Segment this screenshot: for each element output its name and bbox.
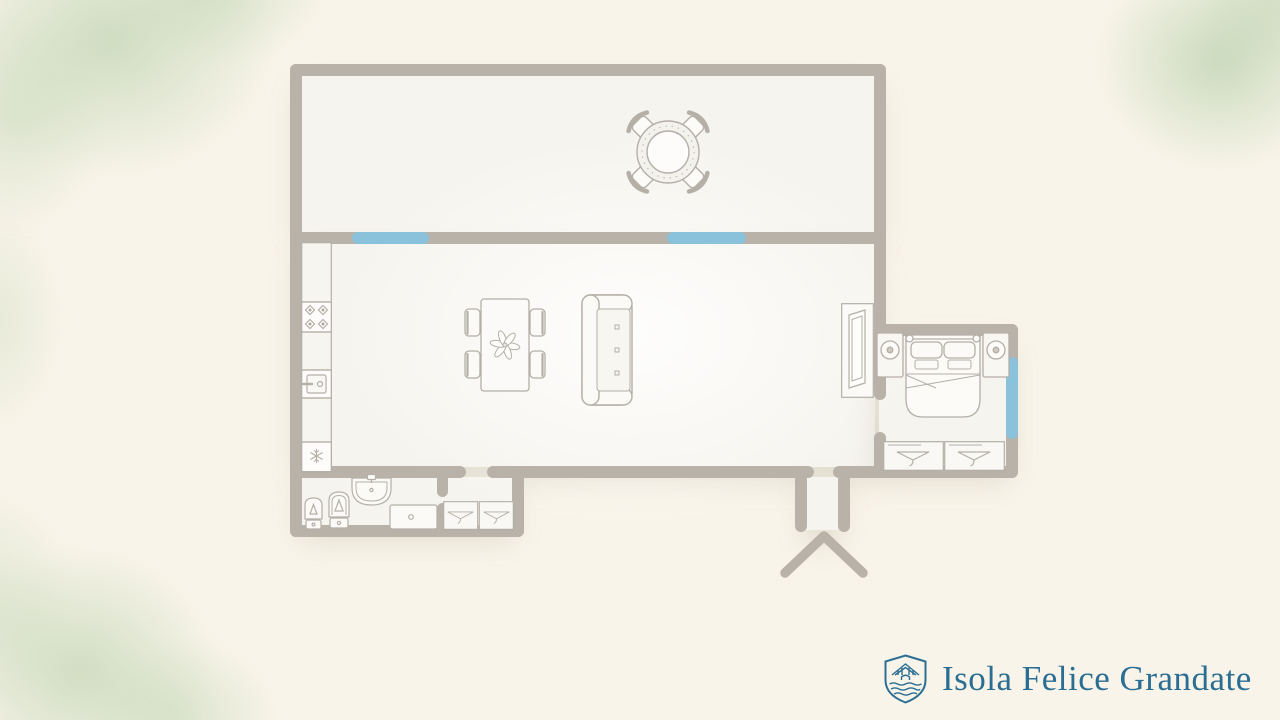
- fridge-icon: [302, 442, 332, 472]
- kitchen-counter: [301, 242, 332, 473]
- hall-closet: [443, 501, 514, 530]
- window: [667, 232, 746, 244]
- chair-icon: [530, 309, 545, 336]
- chair-icon: [530, 351, 545, 378]
- shower-tray: [389, 504, 438, 530]
- round-table-4-chairs: [615, 104, 721, 200]
- dining-table-4-chairs: [463, 296, 547, 396]
- window: [352, 232, 429, 244]
- mirror-wardrobe: [841, 303, 874, 398]
- washbasin: [349, 474, 394, 509]
- wall-segment: [487, 466, 814, 478]
- bed-icon: [906, 335, 980, 417]
- wall-segment: [437, 470, 448, 497]
- wall-segment: [290, 64, 886, 76]
- nightstand-icon: [877, 333, 903, 377]
- brand: Isola Felice Grandate: [882, 653, 1252, 705]
- bidet: [302, 495, 325, 532]
- stove-icon: [302, 302, 332, 332]
- kitchen-sink-icon: [302, 370, 332, 398]
- chair-icon: [465, 309, 480, 336]
- nightstand-icon: [983, 333, 1009, 377]
- entry-arrow: [776, 526, 872, 580]
- chair-icon: [465, 351, 480, 378]
- bedroom-wardrobe: [883, 441, 1005, 471]
- entry-door-jamb-left: [795, 474, 807, 532]
- entry-door-jamb-right: [838, 474, 850, 532]
- faucet-icon: [368, 475, 376, 480]
- pillow-icon: [944, 342, 975, 358]
- double-bed-area: [876, 329, 1010, 421]
- shield-house-waves-icon: [882, 653, 929, 705]
- floor-plan-page: Isola Felice Grandate: [0, 0, 1280, 720]
- brand-name: Isola Felice Grandate: [942, 653, 1252, 705]
- sofa: [581, 294, 633, 406]
- pillow-icon: [911, 342, 942, 358]
